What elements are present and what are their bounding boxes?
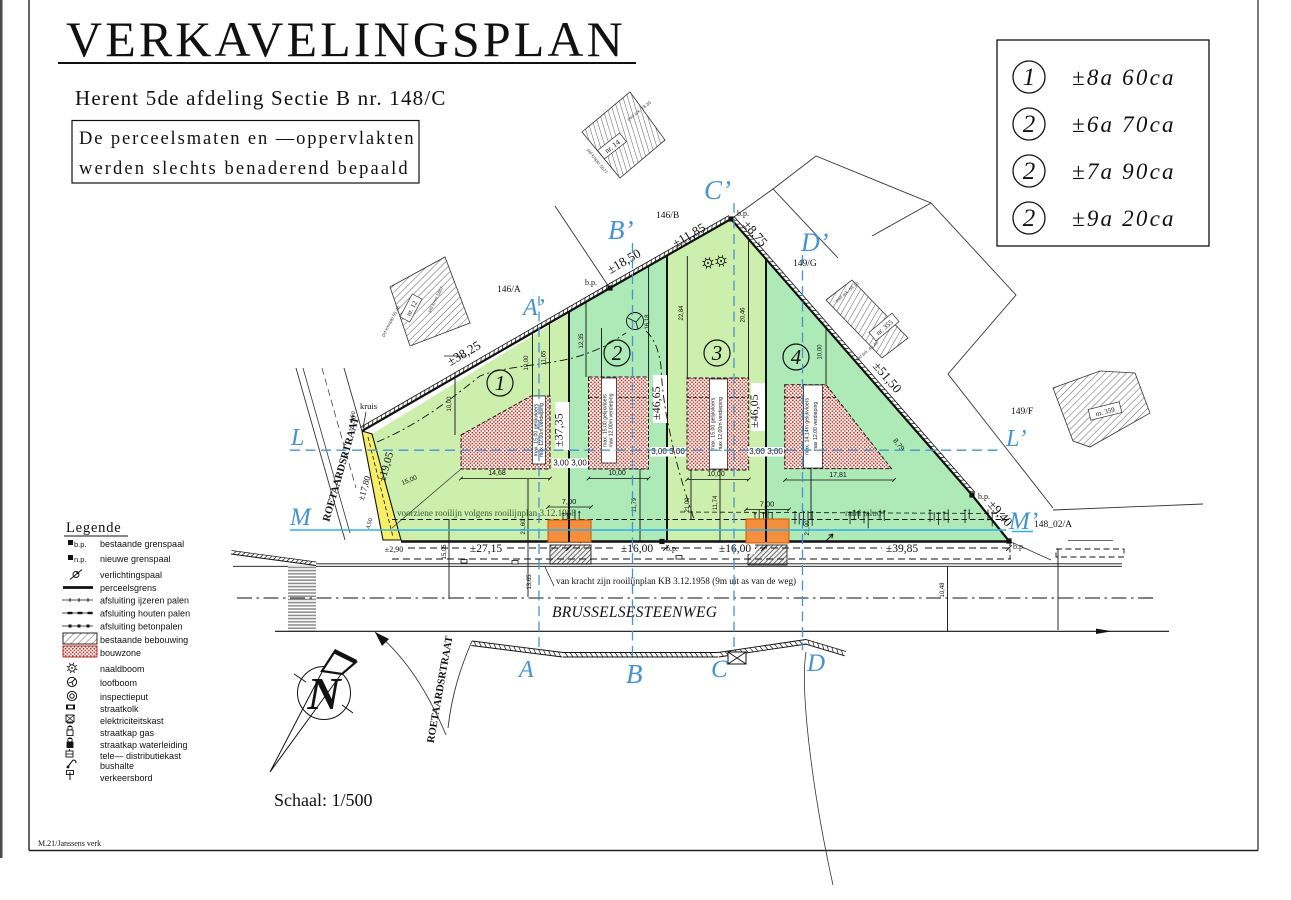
- svg-text:12,35: 12,35: [579, 333, 585, 349]
- svg-text:10,00: 10,00: [707, 471, 725, 478]
- svg-text:±37,35: ±37,35: [552, 413, 566, 447]
- svg-text:BRUSSELSESTEENWEG: BRUSSELSESTEENWEG: [552, 604, 717, 621]
- svg-text:straatkap gas: straatkap gas: [100, 728, 155, 738]
- svg-text:±16,00: ±16,00: [621, 543, 653, 555]
- svg-text:verlichtingspaal: verlichtingspaal: [100, 570, 162, 580]
- svg-text:2: 2: [1023, 158, 1036, 185]
- svg-text:20,46: 20,46: [741, 307, 747, 323]
- svg-text:max 12.00 verdieping: max 12.00 verdieping: [813, 402, 819, 452]
- svg-text:C’: C’: [704, 175, 731, 205]
- svg-text:3,00: 3,00: [669, 447, 685, 456]
- svg-text:b.p.: b.p.: [1013, 542, 1025, 551]
- svg-text:b.p.: b.p.: [666, 544, 678, 553]
- svg-text:kruis: kruis: [360, 401, 377, 411]
- svg-text:max 12.00m verdieping: max 12.00m verdieping: [718, 397, 724, 451]
- svg-text:10,00: 10,00: [818, 344, 824, 360]
- svg-text:2: 2: [1023, 205, 1036, 232]
- svg-text:2: 2: [1023, 111, 1036, 138]
- svg-text:b.p.: b.p.: [74, 540, 87, 549]
- svg-text:n.p.: n.p.: [74, 555, 87, 564]
- svg-text:±7a 90ca: ±7a 90ca: [1072, 159, 1176, 184]
- svg-text:1: 1: [495, 371, 506, 395]
- svg-text:3,00: 3,00: [553, 459, 569, 468]
- svg-text:±46,65: ±46,65: [649, 386, 663, 420]
- svg-text:10,00: 10,00: [608, 470, 626, 477]
- svg-text:14,68: 14,68: [488, 470, 506, 477]
- svg-text:22,84: 22,84: [679, 305, 685, 321]
- svg-text:M.21/Janssens verk: M.21/Janssens verk: [38, 839, 101, 848]
- svg-text:10,00: 10,00: [524, 355, 530, 371]
- svg-text:±27,15: ±27,15: [470, 543, 502, 555]
- svg-text:loofboom: loofboom: [100, 678, 137, 688]
- svg-text:146/A: 146/A: [497, 285, 521, 295]
- svg-text:148_02/A: 148_02/A: [1034, 520, 1072, 530]
- svg-text:A: A: [517, 657, 534, 683]
- svg-text:straatkolk: straatkolk: [100, 704, 139, 714]
- svg-text:inspectieput: inspectieput: [100, 692, 149, 702]
- svg-text:±2,90: ±2,90: [385, 545, 403, 554]
- svg-text:N: N: [306, 668, 342, 719]
- svg-text:rand talud: rand talud: [845, 508, 882, 518]
- svg-text:b.p.: b.p.: [978, 492, 990, 501]
- svg-text:±16,00: ±16,00: [719, 543, 751, 555]
- svg-text:bouwzone: bouwzone: [100, 648, 141, 658]
- svg-text:3,00: 3,00: [651, 447, 667, 456]
- svg-text:±39,85: ±39,85: [886, 543, 918, 555]
- svg-text:De perceelsmaten en —oppervlak: De perceelsmaten en —oppervlakten: [79, 129, 415, 149]
- svg-text:4: 4: [791, 345, 802, 369]
- svg-text:nieuwe grenspaal: nieuwe grenspaal: [100, 554, 171, 564]
- svg-text:bushalte: bushalte: [100, 761, 134, 771]
- svg-text:16,18: 16,18: [645, 314, 651, 330]
- svg-text:verkeersbord: verkeersbord: [100, 773, 153, 783]
- svg-text:bestaande bebouwing: bestaande bebouwing: [100, 635, 188, 645]
- svg-text:146/B: 146/B: [656, 211, 679, 221]
- svg-text:L’: L’: [1005, 426, 1026, 452]
- svg-text:2: 2: [612, 341, 623, 365]
- svg-text:1: 1: [1023, 64, 1036, 91]
- svg-text:tele— distributiekast: tele— distributiekast: [100, 751, 182, 761]
- svg-text:max. 14.14m gelijkvloers: max. 14.14m gelijkvloers: [805, 398, 811, 455]
- svg-text:21,60: 21,60: [521, 519, 527, 535]
- svg-text:Legende: Legende: [66, 520, 122, 536]
- svg-text:max. 15.00 gelijkvloers: max. 15.00 gelijkvloers: [711, 397, 717, 450]
- svg-text:straatkap waterleiding: straatkap waterleiding: [100, 740, 188, 750]
- svg-text:max 12.00m verdieping: max 12.00m verdieping: [609, 393, 615, 447]
- svg-text:15,05: 15,05: [442, 544, 448, 560]
- svg-text:11,74: 11,74: [713, 495, 719, 510]
- svg-text:149/G: 149/G: [793, 259, 817, 269]
- svg-text:13,65: 13,65: [527, 574, 533, 590]
- svg-text:10,48: 10,48: [940, 582, 946, 598]
- svg-text:17,81: 17,81: [829, 472, 847, 479]
- svg-text:±9a 20ca: ±9a 20ca: [1072, 206, 1176, 231]
- svg-text:7,00: 7,00: [760, 500, 775, 509]
- svg-text:3,00: 3,00: [749, 447, 765, 456]
- svg-text:3,00: 3,00: [767, 447, 783, 456]
- svg-text:van kracht zijn rooilijnplan K: van kracht zijn rooilijnplan KB 3.12.195…: [556, 576, 796, 586]
- svg-text:bestaande grenspaal: bestaande grenspaal: [100, 539, 184, 549]
- svg-text:voorziene rooilijn volgens roo: voorziene rooilijn volgens rooilijnplan …: [397, 508, 576, 518]
- svg-text:3: 3: [711, 341, 723, 365]
- svg-text:L: L: [290, 425, 304, 451]
- svg-text:C: C: [711, 656, 728, 683]
- svg-text:149/F: 149/F: [1011, 407, 1033, 417]
- svg-text:max 12.00m verdieping: max 12.00m verdieping: [539, 403, 545, 457]
- svg-text:elektriciteitskast: elektriciteitskast: [100, 716, 164, 726]
- svg-text:10,00: 10,00: [447, 396, 453, 412]
- svg-text:M’: M’: [1008, 508, 1038, 535]
- svg-text:D’: D’: [800, 228, 828, 257]
- svg-text:b.p.: b.p.: [737, 209, 749, 218]
- svg-text:M: M: [289, 504, 312, 531]
- svg-text:afsluiting houten palen: afsluiting houten palen: [100, 609, 190, 619]
- svg-text:B: B: [626, 659, 643, 689]
- svg-text:7,00: 7,00: [562, 497, 577, 506]
- svg-text:afsluiting betonpalen: afsluiting betonpalen: [100, 622, 183, 632]
- svg-text:A’: A’: [521, 295, 545, 321]
- svg-text:VERKAVELINGSPLAN: VERKAVELINGSPLAN: [66, 11, 626, 67]
- svg-text:werden slechts benaderend bepa: werden slechts benaderend bepaald: [79, 159, 410, 179]
- svg-text:±8a 60ca: ±8a 60ca: [1072, 65, 1176, 90]
- svg-text:3,00: 3,00: [571, 459, 587, 468]
- svg-text:afsluiting ijzeren palen: afsluiting ijzeren palen: [100, 596, 189, 606]
- svg-text:D: D: [806, 650, 825, 677]
- svg-text:b.p.: b.p.: [585, 278, 597, 287]
- svg-text:±6a 70ca: ±6a 70ca: [1072, 112, 1176, 137]
- svg-text:perceelsgrens: perceelsgrens: [100, 583, 157, 593]
- svg-text:Schaal: 1/500: Schaal: 1/500: [274, 790, 372, 810]
- svg-text:±46,05: ±46,05: [747, 394, 761, 428]
- svg-text:21,00: 21,00: [685, 497, 691, 513]
- svg-text:B’: B’: [608, 215, 633, 245]
- svg-text:naaldboom: naaldboom: [100, 664, 145, 674]
- svg-text:Herent 5de afdeling Sectie B n: Herent 5de afdeling Sectie B nr. 148/C: [75, 86, 447, 110]
